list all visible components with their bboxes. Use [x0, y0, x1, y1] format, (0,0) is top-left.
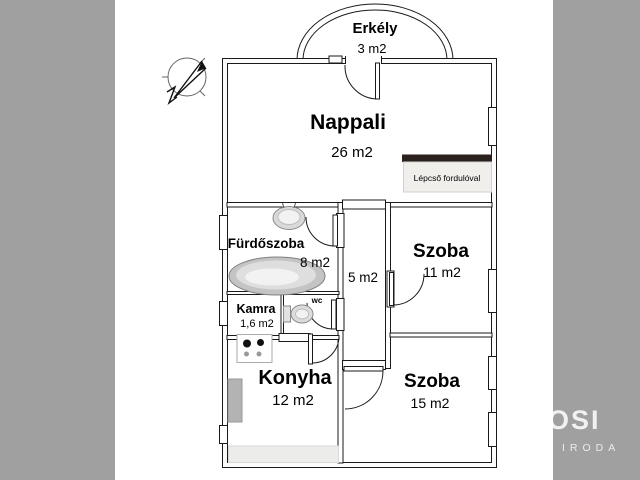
area-kitchen: 12 m2	[272, 392, 314, 409]
label-kitchen: Konyha	[258, 367, 332, 389]
label-wc: wc	[311, 296, 323, 305]
area-living-room: 26 m2	[331, 144, 373, 161]
label-pantry: Kamra	[237, 302, 277, 316]
label-balcony: Erkély	[352, 20, 398, 37]
label-bathroom: Fürdőszoba	[228, 236, 305, 251]
area-pantry: 1,6 m2	[240, 318, 274, 330]
stairs-note-label: Lépcső fordulóval	[414, 173, 481, 183]
floor-plan-drawing: Lépcső fordulóval	[0, 0, 640, 480]
area-bathroom: 8 m2	[300, 255, 330, 270]
floor-plan-page: OSI IRODA	[0, 0, 640, 480]
area-hallway: 5 m2	[348, 270, 378, 285]
area-room-small: 11 m2	[423, 264, 461, 280]
compass-north-arrow-icon	[162, 58, 206, 103]
label-room-small: Szoba	[413, 241, 469, 262]
toilet-icon	[284, 305, 314, 323]
label-room-large: Szoba	[404, 371, 460, 392]
label-living-room: Nappali	[310, 111, 386, 134]
area-balcony: 3 m2	[358, 41, 387, 56]
stove-icon	[237, 335, 272, 363]
stairs-landing-box: Lépcső fordulóval	[402, 155, 492, 193]
area-room-large: 15 m2	[411, 395, 450, 411]
